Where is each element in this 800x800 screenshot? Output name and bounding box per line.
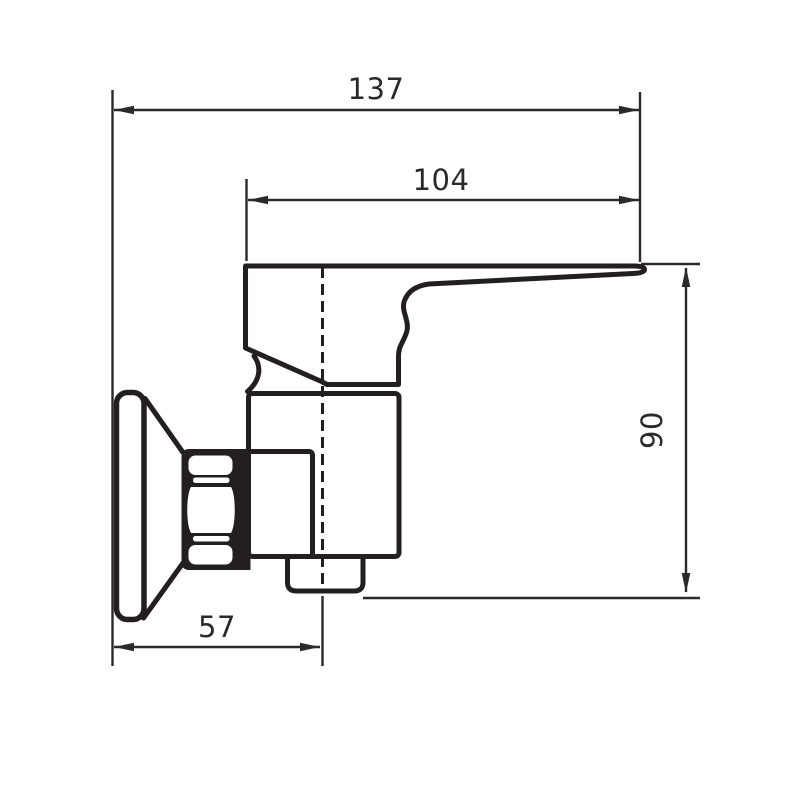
spout-outlet-stub	[288, 557, 364, 591]
dimension-label-137: 137	[348, 72, 405, 106]
arrowhead-90-top	[682, 267, 691, 287]
arrowhead-57-left	[114, 643, 134, 652]
arrowhead-90-bottom	[682, 573, 691, 593]
arrowhead-104-left	[248, 196, 268, 205]
nut-facet-top	[189, 456, 233, 476]
dimension-label-90: 90	[635, 411, 669, 449]
nut-slit-upper	[193, 478, 230, 484]
escutcheon-cone-bottom-line	[144, 563, 184, 618]
mixer-tap-dimension-drawing: 137 104 90 57	[0, 0, 800, 800]
nut-slit-lower	[193, 536, 230, 542]
dimension-label-57: 57	[198, 610, 236, 644]
arrowhead-137-left	[114, 106, 134, 115]
nut-facet-middle	[187, 487, 235, 533]
arrowhead-137-right	[619, 106, 639, 115]
arrowhead-104-right	[619, 196, 639, 205]
dimension-label-104: 104	[413, 163, 470, 197]
housing-swivel-arc	[248, 356, 259, 392]
inlet-boss-lines	[249, 452, 313, 557]
escutcheon-cone-top-line	[145, 399, 183, 453]
technical-drawing-page: 137 104 90 57	[0, 0, 800, 800]
lever-and-housing-outline	[246, 266, 645, 385]
nut-facet-bottom	[189, 545, 233, 565]
escutcheon-plate	[117, 393, 145, 620]
arrowhead-57-right	[300, 643, 320, 652]
